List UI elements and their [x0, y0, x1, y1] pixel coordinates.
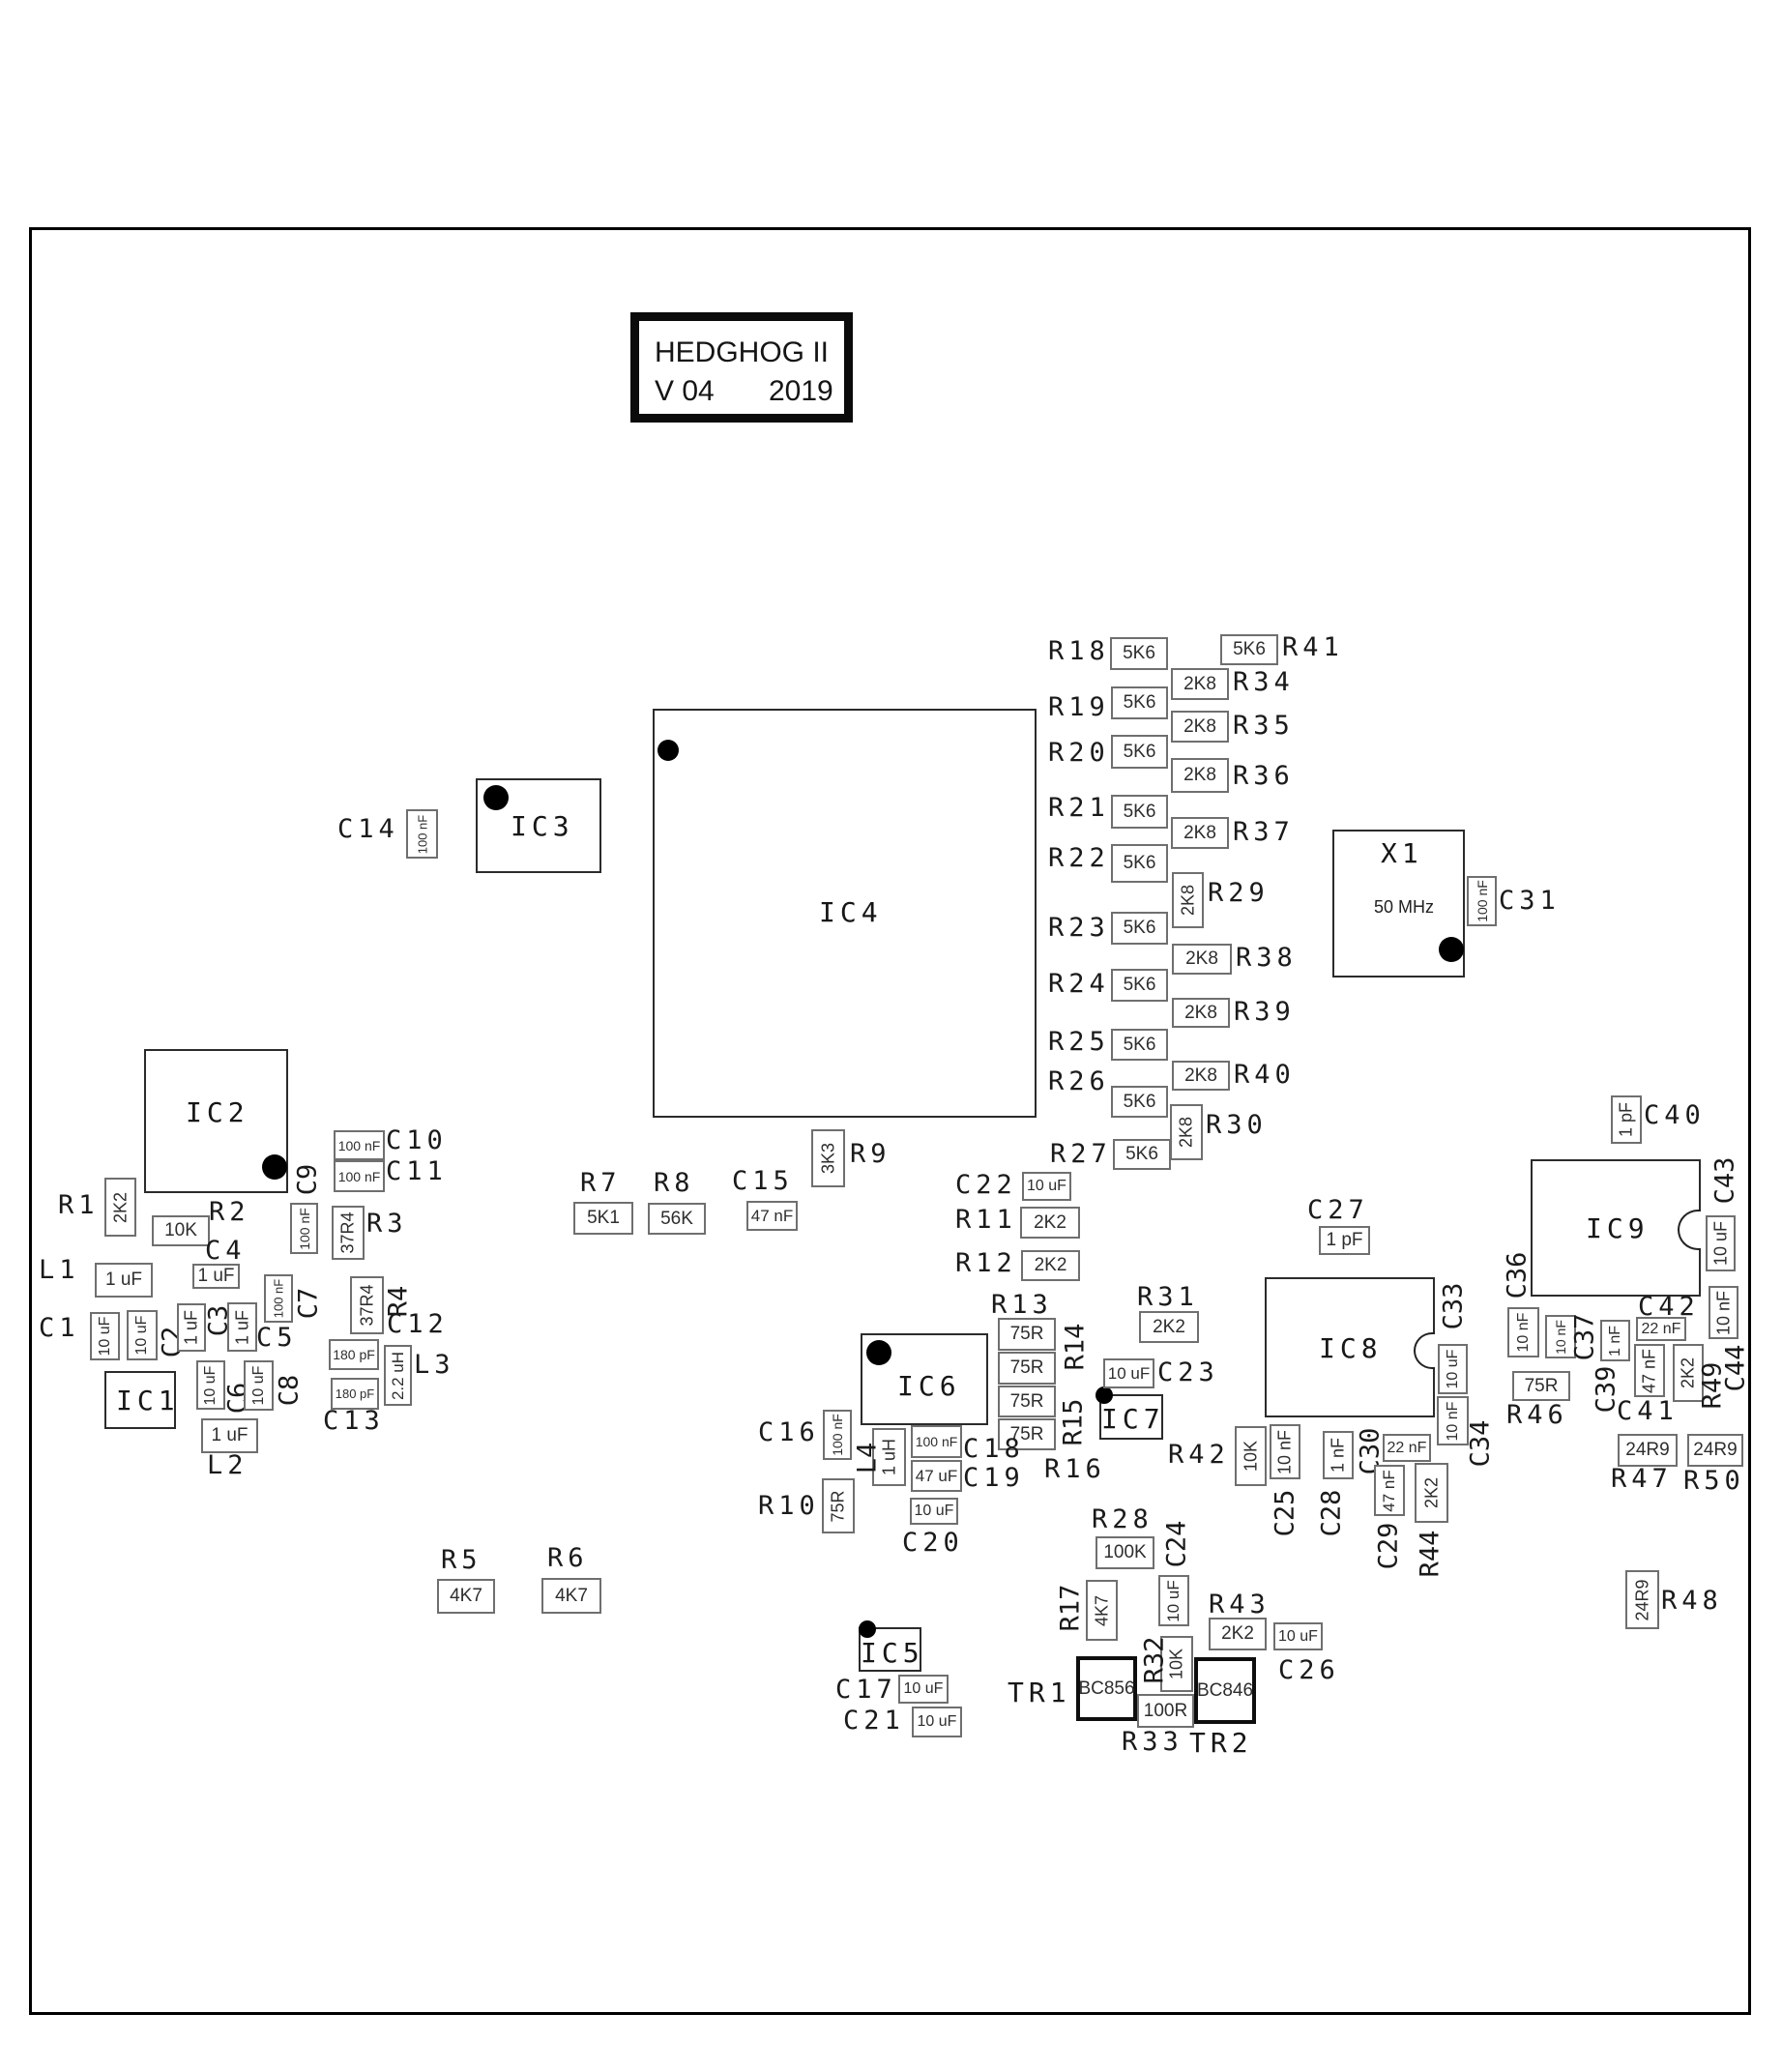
pin1-dot-X1	[1439, 937, 1464, 962]
part-label-R12: R12	[955, 1248, 1017, 1278]
part-label-C19: C19	[963, 1463, 1025, 1493]
part-label-C34: C34	[1466, 1410, 1495, 1476]
part-box-C8: 10 uF	[244, 1360, 274, 1411]
part-value-C28: 1 nF	[1329, 1438, 1349, 1473]
part-label-R47: R47	[1611, 1464, 1673, 1494]
pcb-assembly-drawing: HEDGHOG II V 04 2019 IC1IC2IC3IC4IC5IC6I…	[0, 0, 1782, 2072]
part-value-C37: 10 nF	[1553, 1320, 1568, 1355]
part-value-C20: 10 uF	[915, 1503, 954, 1520]
pin1-dot-IC6	[866, 1340, 891, 1365]
part-label-C17: C17	[835, 1675, 897, 1705]
part-box-R43: 2K2	[1209, 1618, 1267, 1650]
ic-TR1: BC856	[1076, 1656, 1137, 1721]
part-box-C29: 47 nF	[1374, 1465, 1405, 1516]
part-box-R29: 2K8	[1172, 872, 1204, 928]
part-label-R20: R20	[1048, 738, 1110, 768]
part-label-C23: C23	[1157, 1357, 1219, 1387]
part-label-C4: C4	[205, 1236, 247, 1266]
part-label-R3: R3	[366, 1209, 408, 1239]
part-box-R15: 75R	[998, 1386, 1056, 1417]
part-label-R25: R25	[1048, 1027, 1110, 1057]
ic-label-TR1: TR1	[1008, 1677, 1071, 1708]
part-label-R46: R46	[1506, 1400, 1568, 1430]
part-label-C24: C24	[1162, 1510, 1191, 1577]
part-value-C30: 22 nF	[1388, 1440, 1427, 1457]
part-label-C8: C8	[275, 1367, 304, 1414]
part-box-C17: 10 uF	[898, 1675, 949, 1704]
part-label-R48: R48	[1661, 1586, 1723, 1616]
part-value-C15: 47 nF	[751, 1207, 793, 1226]
part-label-R41: R41	[1282, 632, 1344, 662]
part-label-R23: R23	[1048, 913, 1110, 943]
part-label-R38: R38	[1236, 943, 1298, 973]
part-label-R8: R8	[654, 1168, 695, 1198]
ic-label-IC9: IC9	[1586, 1212, 1650, 1244]
part-label-text-C28: C28	[1317, 1489, 1347, 1536]
part-label-L4: L4	[853, 1435, 882, 1481]
part-label-C1: C1	[39, 1313, 80, 1343]
part-value-R4: 37R4	[357, 1284, 377, 1326]
part-value-R50: 24R9	[1693, 1440, 1737, 1461]
part-value-R9: 3K3	[818, 1143, 838, 1174]
part-box-C12: 180 pF	[329, 1339, 379, 1370]
part-value-R28: 100K	[1103, 1542, 1146, 1563]
part-value-R23: 5K6	[1124, 918, 1156, 939]
ic-label-IC1: IC1	[116, 1385, 180, 1416]
part-label-text-R44: R44	[1416, 1530, 1446, 1577]
part-value-R47: 24R9	[1625, 1440, 1669, 1461]
part-label-C26: C26	[1278, 1655, 1340, 1685]
part-label-R32: R32	[1140, 1626, 1169, 1693]
part-label-text-R17: R17	[1056, 1584, 1086, 1631]
pin1-dot-IC2	[262, 1154, 287, 1180]
board-title: HEDGHOG II	[655, 336, 829, 369]
part-value-C34: 10 nF	[1445, 1401, 1462, 1441]
ic-label-IC7: IC7	[1101, 1403, 1165, 1435]
part-label-R28: R28	[1092, 1504, 1154, 1534]
part-value-R21: 5K6	[1124, 802, 1156, 823]
part-value-R46: 75R	[1525, 1376, 1559, 1397]
part-value-C9: 100 nF	[297, 1208, 312, 1250]
part-box-C23: 10 uF	[1103, 1358, 1154, 1388]
part-label-R11: R11	[955, 1205, 1017, 1235]
part-value-R29: 2K8	[1178, 885, 1198, 916]
part-box-R8: 56K	[648, 1203, 706, 1235]
part-label-text-C24: C24	[1162, 1520, 1192, 1567]
part-label-C21: C21	[843, 1706, 905, 1736]
part-value-R2: 10K	[164, 1220, 197, 1241]
part-box-R9: 3K3	[811, 1129, 845, 1187]
part-value-R35: 2K8	[1183, 716, 1216, 738]
part-label-C33: C33	[1439, 1272, 1468, 1339]
part-value-R3: 37R4	[338, 1211, 359, 1253]
part-value-R14: 75R	[1010, 1357, 1044, 1379]
part-box-C22: 10 uF	[1022, 1172, 1071, 1201]
part-value-C19: 47 uF	[916, 1467, 957, 1486]
part-value-R42: 10K	[1241, 1441, 1261, 1472]
part-label-R9: R9	[850, 1139, 891, 1169]
part-value-C14: 100 nF	[415, 814, 429, 853]
part-value-R43: 2K2	[1221, 1623, 1254, 1645]
part-value-R30: 2K8	[1177, 1117, 1197, 1148]
part-box-L3: 2.2 uH	[384, 1345, 412, 1406]
part-box-R36: 2K8	[1171, 758, 1229, 793]
part-label-R19: R19	[1048, 692, 1110, 722]
part-box-C33: 10 uF	[1438, 1344, 1468, 1394]
part-value-R36: 2K8	[1183, 765, 1216, 786]
part-label-R17: R17	[1056, 1574, 1085, 1641]
part-value-R11: 2K2	[1034, 1212, 1066, 1234]
part-value-C11: 100 nF	[338, 1169, 381, 1184]
part-value-C23: 10 uF	[1108, 1364, 1150, 1384]
part-box-C26: 10 uF	[1273, 1622, 1323, 1650]
ic-label-IC3: IC3	[511, 810, 574, 842]
part-label-R13: R13	[991, 1290, 1053, 1320]
part-label-C43: C43	[1710, 1147, 1739, 1213]
part-label-R7: R7	[580, 1168, 622, 1198]
part-value-C31: 100 nF	[1475, 880, 1490, 922]
part-value-R26: 5K6	[1124, 1092, 1156, 1113]
part-box-R23: 5K6	[1111, 912, 1168, 945]
ic-label-IC8: IC8	[1319, 1332, 1383, 1364]
part-label-text-C36: C36	[1503, 1251, 1533, 1299]
part-box-R25: 5K6	[1111, 1029, 1168, 1061]
part-box-R18: 5K6	[1110, 637, 1168, 670]
part-value-C33: 10 uF	[1445, 1350, 1462, 1389]
part-label-R26: R26	[1048, 1066, 1110, 1096]
part-value-L2: 1 uF	[211, 1425, 248, 1446]
part-value-R39: 2K8	[1184, 1003, 1217, 1024]
part-label-R10: R10	[758, 1491, 820, 1521]
part-label-text-C37: C37	[1570, 1313, 1600, 1360]
part-box-R47: 24R9	[1618, 1434, 1678, 1467]
part-label-text-R15: R15	[1059, 1398, 1089, 1445]
part-value-C25: 10 nF	[1275, 1429, 1296, 1474]
part-value-R34: 2K8	[1183, 674, 1216, 695]
part-value-C5: 1 uF	[232, 1309, 252, 1344]
part-box-C19: 47 uF	[911, 1460, 962, 1492]
part-label-C27: C27	[1307, 1195, 1369, 1225]
part-value-C26: 10 uF	[1278, 1628, 1318, 1646]
pin1-dot-IC4	[657, 740, 679, 761]
part-value-C27: 1 pF	[1326, 1230, 1362, 1251]
part-label-R29: R29	[1208, 878, 1270, 908]
part-label-text-C9: C9	[293, 1164, 323, 1196]
part-label-R43: R43	[1209, 1590, 1271, 1620]
part-value-C12: 180 pF	[333, 1347, 375, 1362]
part-label-text-L4: L4	[853, 1443, 883, 1474]
part-label-R35: R35	[1233, 711, 1295, 741]
part-box-C5: 1 uF	[227, 1302, 257, 1352]
part-label-L3: L3	[414, 1350, 455, 1380]
part-label-R18: R18	[1048, 636, 1110, 666]
part-label-C25: C25	[1271, 1479, 1300, 1546]
part-label-L1: L1	[39, 1255, 80, 1285]
part-label-text-C25: C25	[1271, 1489, 1300, 1536]
part-box-C31: 100 nF	[1467, 876, 1497, 926]
part-label-R36: R36	[1233, 761, 1295, 791]
part-label-C13: C13	[323, 1406, 385, 1436]
part-value-R48: 24R9	[1632, 1579, 1652, 1620]
part-label-C28: C28	[1317, 1479, 1346, 1546]
part-label-R37: R37	[1233, 817, 1295, 847]
part-label-C9: C9	[293, 1156, 322, 1203]
part-box-R42: 10K	[1235, 1426, 1267, 1486]
part-value-C39: 1 nF	[1607, 1325, 1624, 1356]
part-value-R20: 5K6	[1124, 742, 1156, 763]
part-box-C40: 1 pF	[1611, 1095, 1642, 1144]
part-label-C12: C12	[387, 1309, 449, 1339]
part-label-R5: R5	[441, 1545, 482, 1575]
ic-label-IC6: IC6	[897, 1370, 961, 1402]
part-box-C36: 10 nF	[1507, 1307, 1539, 1357]
part-value-C4: 1 uF	[197, 1266, 234, 1287]
part-value-R5: 4K7	[450, 1586, 482, 1607]
part-box-R17: 4K7	[1086, 1580, 1118, 1641]
part-value-R37: 2K8	[1183, 823, 1216, 844]
ic-label-IC5: IC5	[861, 1637, 924, 1669]
part-label-R2: R2	[209, 1197, 250, 1227]
part-box-R11: 2K2	[1020, 1207, 1080, 1239]
part-label-text-R32: R32	[1140, 1636, 1170, 1683]
part-label-C10: C10	[386, 1125, 448, 1155]
part-value-R12: 2K2	[1035, 1255, 1067, 1276]
part-box-R27: 5K6	[1113, 1139, 1171, 1170]
pin1-dot-IC5	[859, 1620, 876, 1638]
part-value-R32: 10K	[1167, 1649, 1187, 1679]
part-value-C29: 47 nF	[1380, 1470, 1399, 1511]
part-value-C21: 10 uF	[918, 1713, 957, 1731]
ic-TR2: BC846	[1194, 1657, 1256, 1724]
part-box-C16: 100 nF	[823, 1410, 852, 1460]
part-value-R49: 2K2	[1679, 1357, 1699, 1388]
part-value-R8: 56K	[660, 1209, 693, 1230]
part-label-R15: R15	[1059, 1388, 1088, 1455]
part-value-C8: 10 uF	[250, 1366, 268, 1406]
part-box-R21: 5K6	[1111, 795, 1168, 829]
part-box-C25: 10 nF	[1270, 1424, 1300, 1479]
part-label-C36: C36	[1503, 1241, 1532, 1308]
part-box-R4: 37R4	[350, 1276, 384, 1334]
part-box-R26: 5K6	[1111, 1086, 1168, 1118]
board-version: V 04	[655, 375, 715, 408]
part-box-C6: 10 uF	[196, 1360, 225, 1410]
part-box-R28: 100K	[1095, 1536, 1154, 1569]
part-label-C16: C16	[758, 1417, 820, 1447]
part-box-C2: 10 uF	[127, 1310, 158, 1360]
part-label-R40: R40	[1234, 1060, 1296, 1090]
part-box-R35: 2K8	[1171, 711, 1229, 743]
part-value-C18: 100 nF	[916, 1434, 958, 1449]
part-label-text-C44: C44	[1721, 1344, 1751, 1391]
part-box-R14: 75R	[998, 1352, 1056, 1385]
part-label-C5: C5	[256, 1323, 298, 1353]
ic-value-TR2: BC846	[1197, 1680, 1253, 1702]
part-label-R39: R39	[1234, 997, 1296, 1027]
part-box-R44: 2K2	[1415, 1463, 1448, 1523]
part-value-R17: 4K7	[1092, 1594, 1112, 1625]
part-box-R41: 5K6	[1220, 634, 1278, 665]
part-value-L3: 2.2 uH	[389, 1351, 408, 1399]
part-box-R48: 24R9	[1625, 1570, 1659, 1629]
part-value-C2: 10 uF	[133, 1316, 151, 1356]
part-label-R14: R14	[1061, 1313, 1090, 1380]
part-value-C36: 10 nF	[1515, 1313, 1533, 1353]
part-box-R12: 2K2	[1021, 1250, 1080, 1281]
part-value-R6: 4K7	[555, 1586, 588, 1607]
part-value-C17: 10 uF	[904, 1680, 944, 1698]
part-value-R1: 2K2	[110, 1191, 131, 1222]
part-box-R6: 4K7	[541, 1578, 601, 1614]
part-value-C44: 10 nF	[1713, 1290, 1734, 1334]
part-value-R27: 5K6	[1125, 1144, 1158, 1165]
part-label-R16: R16	[1044, 1454, 1106, 1484]
part-label-C31: C31	[1499, 886, 1561, 916]
part-label-R42: R42	[1168, 1440, 1230, 1470]
part-label-C29: C29	[1374, 1512, 1403, 1579]
part-value-C16: 100 nF	[830, 1414, 845, 1456]
part-label-R21: R21	[1048, 793, 1110, 823]
part-value-R15: 75R	[1010, 1391, 1044, 1413]
part-label-R34: R34	[1233, 667, 1295, 697]
part-box-R40: 2K8	[1172, 1061, 1230, 1091]
part-label-C41: C41	[1617, 1396, 1679, 1426]
part-box-R33: 100R	[1137, 1694, 1194, 1728]
part-box-L1: 1 uF	[95, 1263, 153, 1298]
part-value-L1: 1 uF	[105, 1269, 142, 1291]
part-value-R19: 5K6	[1124, 692, 1156, 714]
part-value-R31: 2K2	[1153, 1317, 1185, 1338]
part-value-R7: 5K1	[587, 1208, 620, 1229]
pin1-dot-IC3	[483, 785, 509, 810]
part-box-R19: 5K6	[1111, 686, 1168, 719]
part-value-C24: 10 uF	[1164, 1580, 1183, 1621]
part-box-R20: 5K6	[1111, 735, 1168, 769]
part-value-C7: 100 nF	[272, 1279, 286, 1318]
part-label-R1: R1	[58, 1190, 100, 1220]
part-value-R33: 100R	[1144, 1701, 1187, 1722]
part-box-R22: 5K6	[1111, 844, 1168, 883]
part-label-R50: R50	[1683, 1466, 1745, 1496]
part-value-R25: 5K6	[1124, 1035, 1156, 1056]
part-box-C1: 10 uF	[90, 1312, 120, 1360]
part-value-C13: 180 pF	[336, 1386, 374, 1401]
part-box-R37: 2K8	[1171, 817, 1229, 849]
part-label-C14: C14	[337, 814, 399, 844]
part-box-C44: 10 nF	[1709, 1286, 1738, 1339]
part-label-R33: R33	[1122, 1727, 1183, 1757]
part-label-text-C33: C33	[1439, 1282, 1469, 1329]
part-box-C21: 10 uF	[912, 1707, 962, 1737]
ic-label-IC4: IC4	[819, 896, 883, 928]
part-label-R30: R30	[1206, 1110, 1268, 1140]
part-label-C22: C22	[955, 1170, 1017, 1200]
part-label-text-R14: R14	[1061, 1323, 1091, 1370]
part-label-R24: R24	[1048, 969, 1110, 999]
part-value-R18: 5K6	[1123, 643, 1155, 664]
part-box-R30: 2K8	[1170, 1104, 1203, 1160]
part-box-C27: 1 pF	[1319, 1226, 1370, 1255]
ic-value-TR1: BC856	[1078, 1678, 1134, 1700]
part-value-R44: 2K2	[1421, 1477, 1442, 1508]
part-box-C30: 22 nF	[1383, 1434, 1431, 1462]
part-box-C28: 1 nF	[1323, 1431, 1354, 1479]
part-box-C9: 100 nF	[290, 1203, 318, 1254]
part-box-R13: 75R	[998, 1318, 1056, 1351]
ic-label-TR2: TR2	[1189, 1727, 1253, 1759]
ic-label-IC2: IC2	[186, 1096, 249, 1128]
part-value-C43: 10 uF	[1710, 1221, 1731, 1266]
pin1-dot-IC7	[1095, 1386, 1113, 1404]
part-box-C11: 100 nF	[334, 1160, 385, 1192]
part-box-R38: 2K8	[1172, 944, 1232, 975]
part-box-R39: 2K8	[1172, 998, 1230, 1028]
part-label-text-C7: C7	[294, 1288, 324, 1320]
part-label-C40: C40	[1644, 1100, 1706, 1130]
pin1-notch-IC9	[1678, 1210, 1701, 1250]
ic-label-X1: X1	[1381, 837, 1423, 869]
part-box-L2: 1 uF	[201, 1418, 258, 1453]
part-value-R22: 5K6	[1124, 853, 1156, 874]
part-label-C11: C11	[386, 1156, 448, 1186]
part-value-C42: 22 nF	[1642, 1321, 1681, 1338]
part-box-C41: 47 nF	[1634, 1344, 1665, 1397]
part-box-R46: 75R	[1512, 1371, 1570, 1401]
part-value-R41: 5K6	[1233, 639, 1266, 660]
part-box-C43: 10 uF	[1706, 1215, 1736, 1271]
part-box-R7: 5K1	[573, 1202, 633, 1235]
part-box-C3: 1 uF	[177, 1303, 206, 1352]
part-box-C24: 10 uF	[1158, 1575, 1189, 1626]
part-label-C20: C20	[902, 1528, 964, 1558]
part-label-text-C43: C43	[1710, 1156, 1740, 1204]
board-year: 2019	[769, 375, 833, 408]
part-label-R44: R44	[1416, 1520, 1445, 1587]
part-value-C10: 100 nF	[338, 1138, 381, 1153]
part-box-R2: 10K	[152, 1215, 210, 1246]
part-box-C20: 10 uF	[910, 1498, 958, 1525]
part-label-C44: C44	[1721, 1334, 1750, 1401]
part-box-R3: 37R4	[332, 1206, 365, 1260]
part-box-C34: 10 nF	[1437, 1396, 1469, 1445]
part-box-R24: 5K6	[1111, 969, 1168, 1002]
part-label-L2: L2	[207, 1450, 248, 1480]
part-value-R38: 2K8	[1185, 948, 1218, 970]
part-value-R40: 2K8	[1184, 1065, 1217, 1087]
part-label-R27: R27	[1050, 1139, 1112, 1169]
part-box-R31: 2K2	[1139, 1311, 1199, 1343]
part-box-C18: 100 nF	[911, 1425, 962, 1458]
pin1-notch-IC8	[1414, 1332, 1435, 1369]
part-label-C15: C15	[732, 1166, 794, 1196]
part-label-R22: R22	[1048, 843, 1110, 873]
part-box-C14: 100 nF	[406, 809, 438, 859]
part-label-C18: C18	[963, 1434, 1025, 1464]
part-box-R34: 2K8	[1171, 668, 1229, 700]
part-value-R24: 5K6	[1124, 975, 1156, 996]
part-box-C15: 47 nF	[746, 1201, 798, 1231]
part-value-R10: 75R	[829, 1490, 849, 1522]
part-label-text-C8: C8	[275, 1375, 305, 1407]
part-value-C22: 10 uF	[1027, 1178, 1066, 1195]
ic-sub-X1: 50 MHz	[1374, 897, 1434, 918]
part-value-C1: 10 uF	[97, 1317, 114, 1357]
part-box-C10: 100 nF	[334, 1130, 385, 1160]
part-box-C7: 100 nF	[264, 1274, 293, 1323]
part-value-C6: 10 uF	[202, 1365, 219, 1405]
part-value-C41: 47 nF	[1640, 1348, 1660, 1392]
part-value-C3: 1 uF	[182, 1310, 202, 1345]
